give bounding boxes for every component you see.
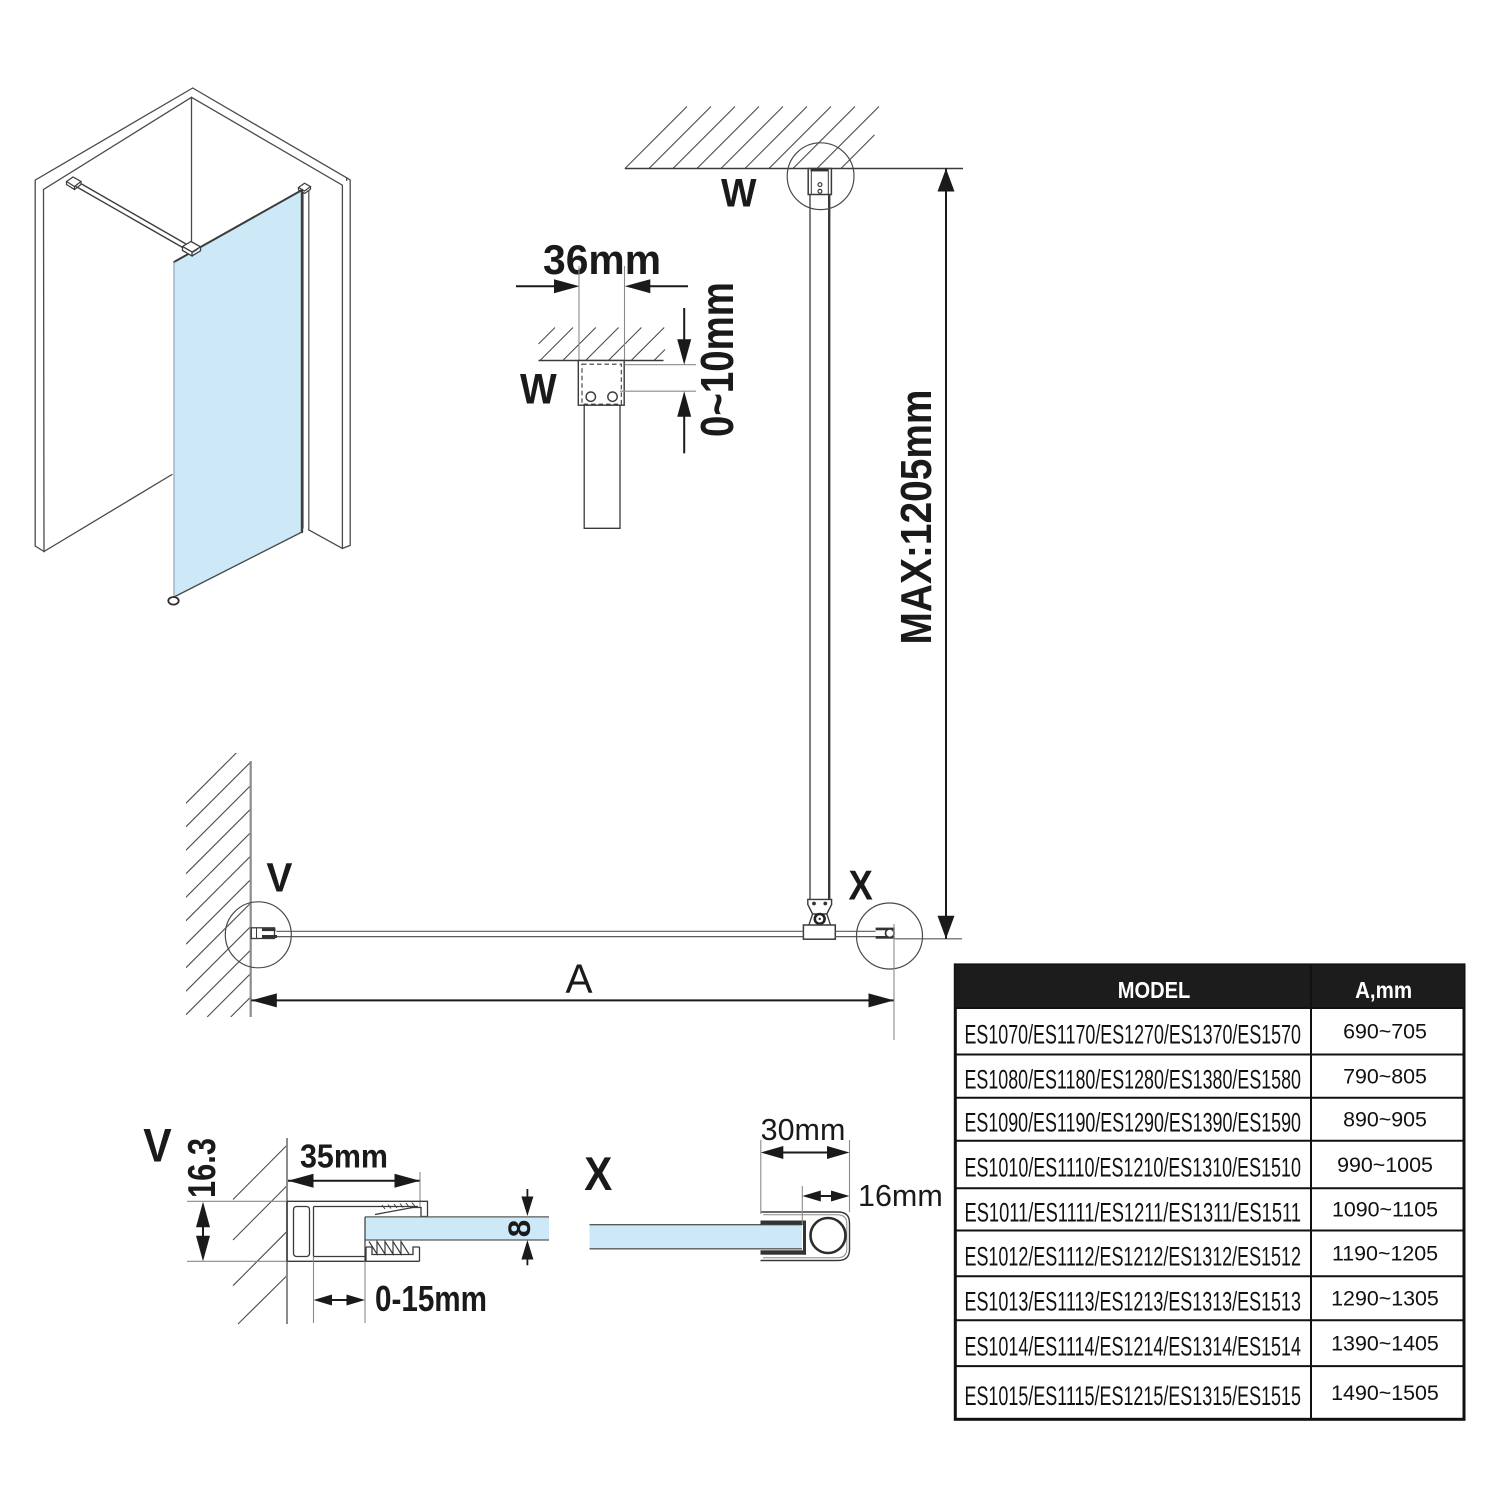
svg-text:1190~1205: 1190~1205	[1332, 1242, 1438, 1266]
svg-text:790~805: 790~805	[1343, 1065, 1427, 1089]
svg-text:ES1011/ES1111/ES1211/ES1311/ES: ES1011/ES1111/ES1211/ES1311/ES1511	[965, 1198, 1302, 1228]
svg-text:ES1014/ES1114/ES1214/ES1314/ES: ES1014/ES1114/ES1214/ES1314/ES1514	[965, 1331, 1302, 1361]
svg-text:ES1070/ES1170/ES1270/ES1370/ES: ES1070/ES1170/ES1270/ES1370/ES1570	[965, 1020, 1302, 1050]
svg-text:ES1012/ES1112/ES1212/ES1312/ES: ES1012/ES1112/ES1212/ES1312/ES1512	[965, 1242, 1302, 1272]
svg-text:1290~1305: 1290~1305	[1331, 1287, 1439, 1311]
svg-text:16mm: 16mm	[858, 1179, 943, 1213]
svg-text:V: V	[266, 855, 293, 901]
svg-text:X: X	[584, 1147, 612, 1200]
svg-text:30mm: 30mm	[761, 1113, 846, 1147]
svg-text:V: V	[143, 1119, 172, 1172]
svg-text:990~1005: 990~1005	[1337, 1153, 1433, 1177]
svg-text:A,mm: A,mm	[1355, 977, 1412, 1003]
svg-text:MODEL: MODEL	[1118, 977, 1191, 1003]
svg-text:ES1013/ES1113/ES1213/ES1313/ES: ES1013/ES1113/ES1213/ES1313/ES1513	[965, 1287, 1302, 1317]
svg-text:W: W	[721, 172, 757, 216]
svg-text:0~10mm: 0~10mm	[691, 282, 743, 437]
svg-text:16.3: 16.3	[181, 1138, 224, 1198]
svg-text:36mm: 36mm	[543, 236, 661, 283]
svg-text:1090~1105: 1090~1105	[1332, 1198, 1438, 1222]
svg-text:A: A	[565, 956, 592, 1002]
svg-text:0-15mm: 0-15mm	[375, 1278, 487, 1319]
svg-text:ES1015/ES1115/ES1215/ES1315/ES: ES1015/ES1115/ES1215/ES1315/ES1515	[965, 1381, 1302, 1411]
svg-text:690~705: 690~705	[1343, 1020, 1427, 1044]
svg-text:890~905: 890~905	[1343, 1108, 1427, 1132]
svg-text:W: W	[520, 365, 557, 413]
svg-text:ES1010/ES1110/ES1210/ES1310/ES: ES1010/ES1110/ES1210/ES1310/ES1510	[965, 1153, 1302, 1183]
svg-text:1390~1405: 1390~1405	[1331, 1332, 1439, 1356]
svg-text:X: X	[848, 862, 872, 909]
svg-text:35mm: 35mm	[300, 1139, 388, 1176]
svg-text:8: 8	[501, 1220, 537, 1238]
svg-text:ES1080/ES1180/ES1280/ES1380/ES: ES1080/ES1180/ES1280/ES1380/ES1580	[965, 1064, 1302, 1094]
svg-text:MAX:1205mm: MAX:1205mm	[893, 390, 941, 645]
svg-text:ES1090/ES1190/ES1290/ES1390/ES: ES1090/ES1190/ES1290/ES1390/ES1590	[965, 1108, 1302, 1138]
svg-text:1490~1505: 1490~1505	[1331, 1381, 1439, 1405]
